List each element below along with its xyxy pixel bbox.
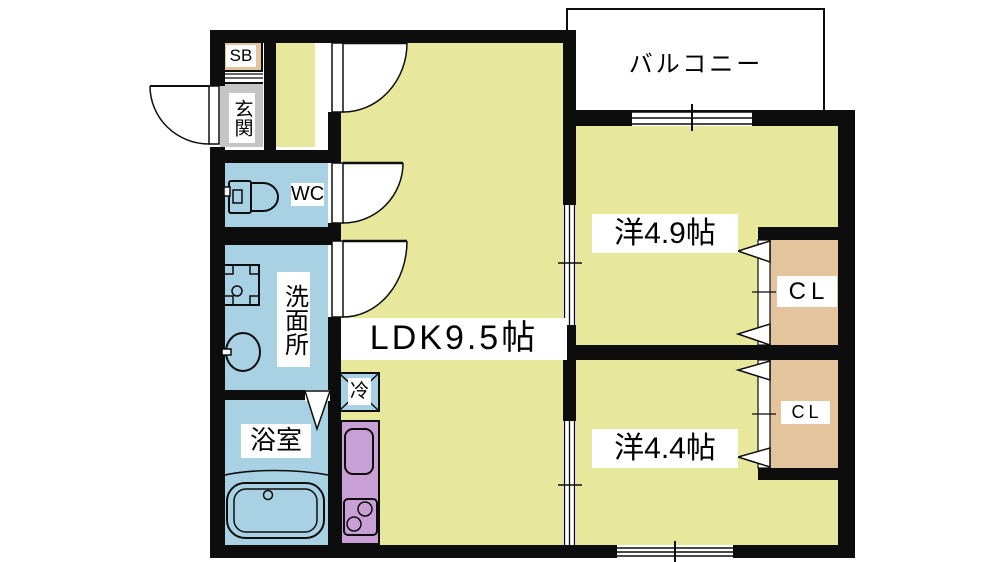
wall-washroom-bath (210, 390, 305, 400)
wall-top (210, 30, 575, 43)
wall-entrance-bottom (210, 150, 341, 163)
floor-plan: バルコニー SB 玄関 WC 洗面所 浴室 冷 LDK9.5帖 洋4.9帖 洋4… (0, 0, 1000, 562)
entrance-door-icon (150, 86, 219, 144)
refrigerator-label: 冷 (348, 378, 371, 405)
shoe-box-label: SB (226, 45, 256, 67)
wall-closet1-top (758, 227, 855, 240)
bedroom2-label: 洋4.4帖 (592, 429, 738, 468)
wall-closet2-bottom (758, 468, 855, 480)
hallway-area (276, 43, 315, 147)
wall-right (838, 110, 855, 558)
bathroom-area (225, 400, 328, 545)
wall-partition-upper (563, 30, 576, 205)
wall-bedroom-divider (563, 345, 855, 360)
bathroom-label: 浴室 (241, 424, 311, 458)
closet2-label: CL (781, 401, 830, 424)
wall-left-lower (210, 147, 225, 558)
wall-wc-washroom (210, 227, 341, 245)
wall-entrance-right (264, 43, 276, 150)
ldk-label: LDK9.5帖 (341, 318, 567, 360)
wall-left-upper (210, 30, 225, 86)
kitchen-counter (340, 420, 380, 545)
wall-bottom-right (733, 545, 855, 558)
wall-bottom-left (210, 545, 617, 558)
closet1-label: CL (777, 276, 837, 307)
washroom-label: 洗面所 (277, 272, 310, 367)
wall-bedroom1-top-r (752, 110, 855, 126)
wall-corridor-3 (328, 317, 341, 545)
bedroom1-label: 洋4.9帖 (592, 214, 738, 253)
balcony-label: バルコニー (615, 49, 777, 80)
entrance-label: 玄関 (229, 93, 255, 143)
toilet-label: WC (291, 183, 324, 206)
wall-corridor-1 (328, 112, 341, 163)
